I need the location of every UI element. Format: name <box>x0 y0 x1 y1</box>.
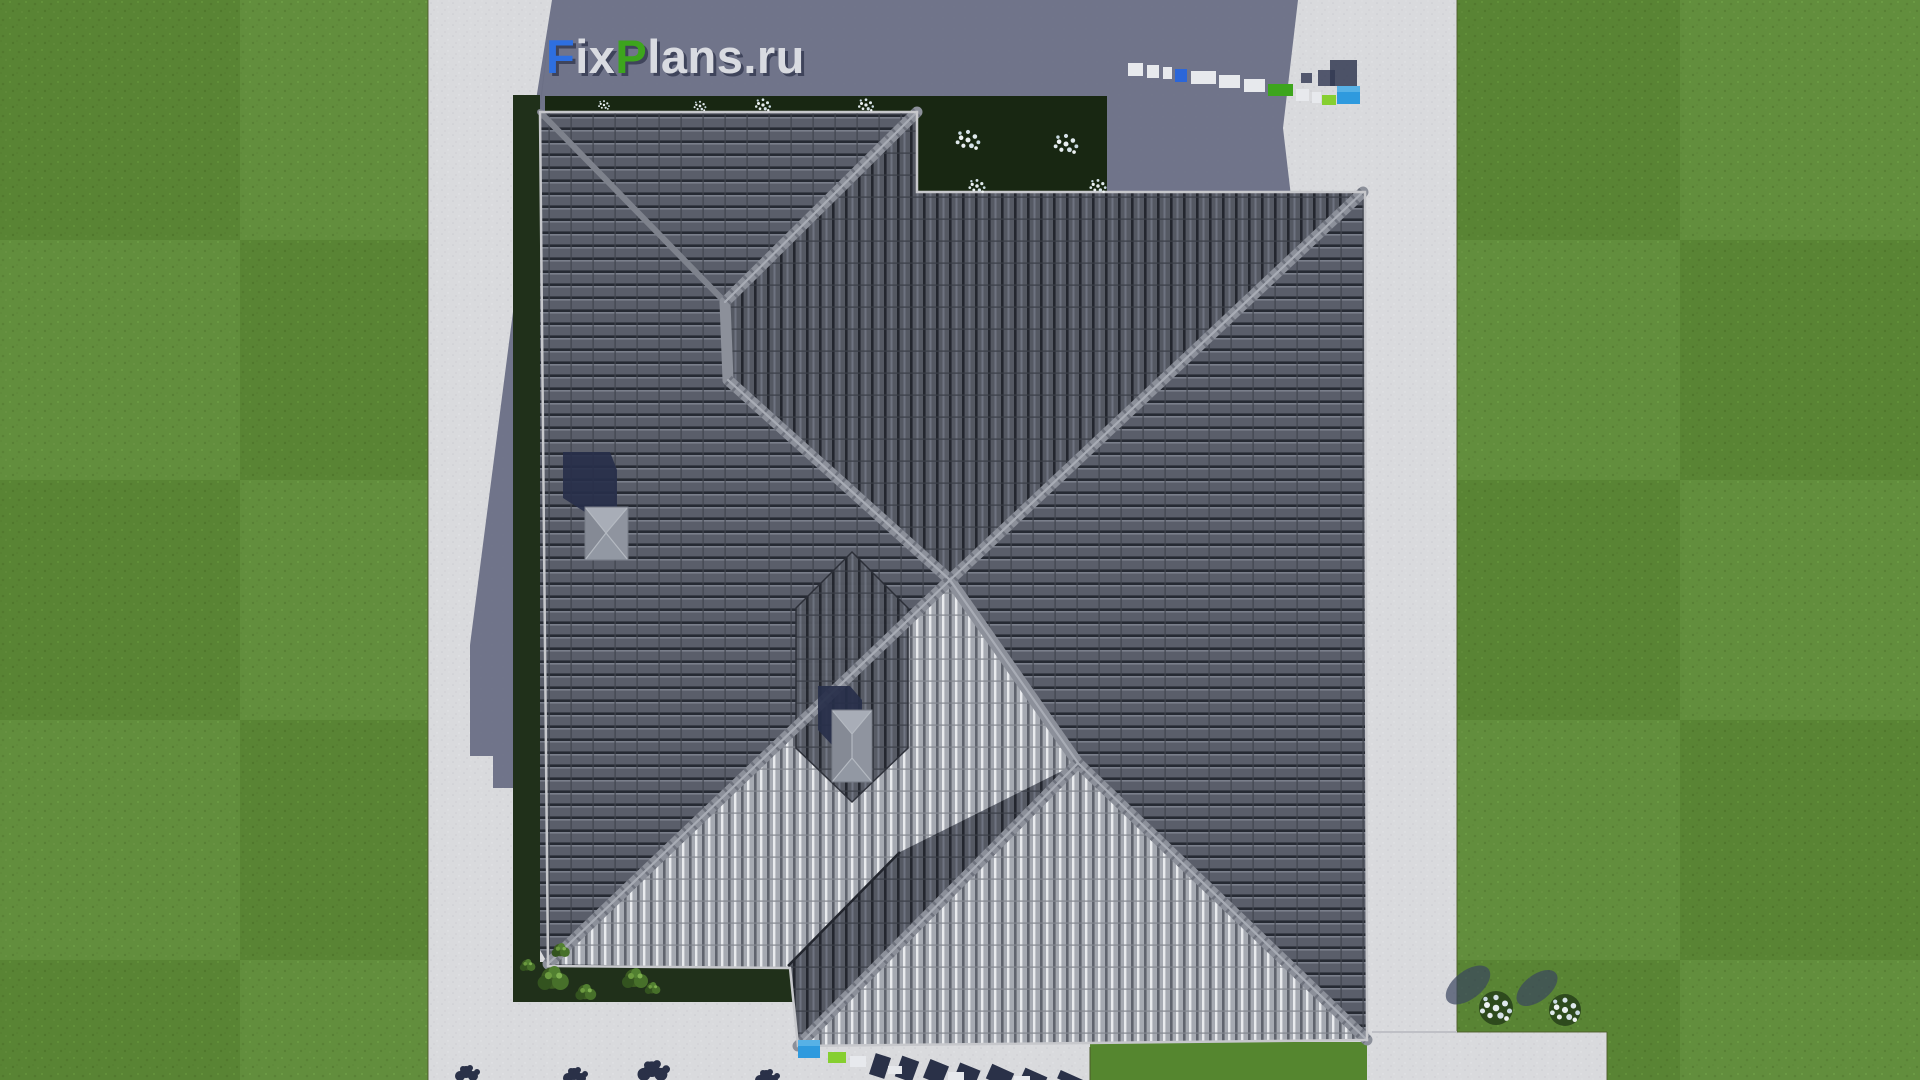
white-block <box>1163 67 1172 79</box>
blue-cube-top <box>1337 86 1360 92</box>
green-block <box>1268 84 1293 96</box>
lime-block <box>1322 95 1336 105</box>
garden-bed-main <box>917 96 1107 192</box>
scene-svg: FixPlans.ru FixPlans.ru <box>0 0 1920 1080</box>
blue-cube-top <box>798 1040 820 1046</box>
chimney-1-shadow <box>563 452 617 512</box>
ridge-main-left <box>725 302 728 380</box>
block-shadow <box>1330 60 1357 86</box>
white-block <box>1244 79 1265 92</box>
white-block <box>888 1066 902 1074</box>
white-block <box>1147 65 1159 78</box>
lime-block <box>828 1052 846 1063</box>
logo-letter-p: P <box>615 30 647 83</box>
grass-strip-bottom-right <box>1090 1042 1367 1080</box>
block-shadow <box>1301 73 1312 83</box>
white-block <box>850 1056 866 1067</box>
white-block <box>1014 1076 1030 1080</box>
white-block <box>1191 71 1216 84</box>
white-block <box>948 1072 964 1080</box>
house-roof <box>540 112 1367 1046</box>
logo-letters-lans-ru: lans.ru <box>647 30 805 83</box>
white-block <box>1312 92 1321 103</box>
concrete-pad <box>1457 1032 1607 1080</box>
logo-text: FixPlans.ru <box>546 30 805 83</box>
blue-block <box>1175 69 1187 82</box>
grass-strip-left <box>513 95 540 1002</box>
white-block <box>1296 89 1309 101</box>
white-block <box>1128 63 1143 76</box>
aerial-roof-render: FixPlans.ru FixPlans.ru <box>0 0 1920 1080</box>
logo-letters-ix: ix <box>575 30 615 83</box>
white-block <box>1219 75 1240 88</box>
logo-letter-f: F <box>546 30 575 83</box>
logo-watermark: FixPlans.ru FixPlans.ru <box>546 30 808 86</box>
